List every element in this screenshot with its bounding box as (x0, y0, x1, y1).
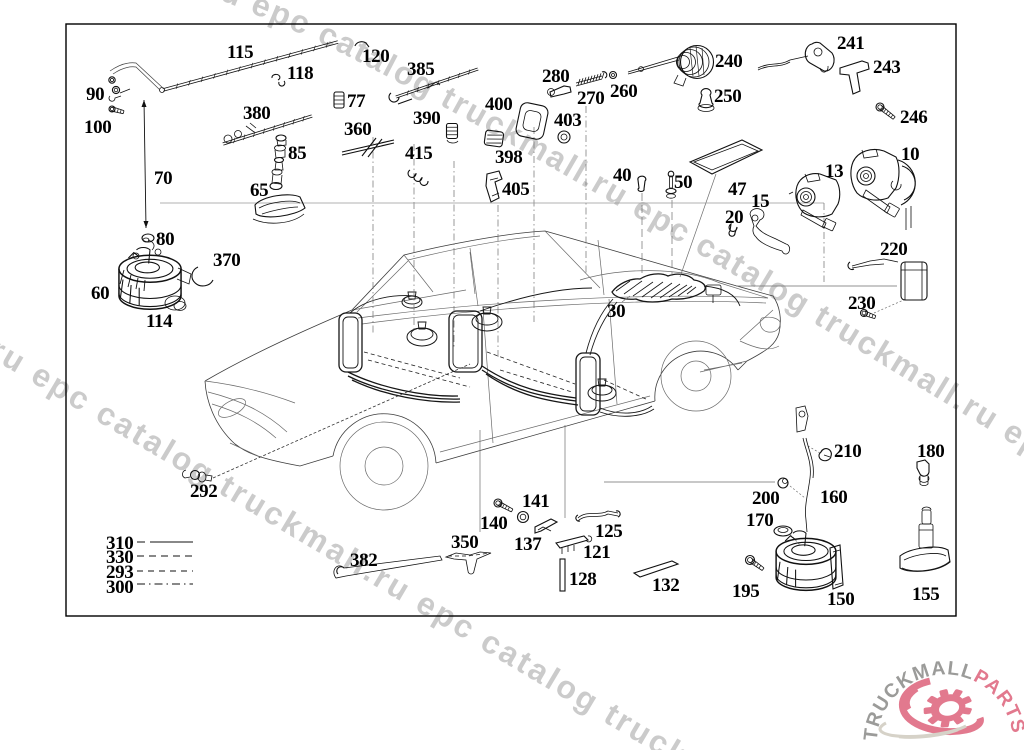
svg-text:90: 90 (86, 84, 104, 105)
svg-text:403: 403 (554, 110, 581, 131)
svg-text:50: 50 (674, 172, 692, 193)
svg-text:260: 260 (610, 81, 637, 102)
svg-text:121: 121 (583, 542, 610, 563)
svg-text:77: 77 (347, 91, 366, 112)
svg-text:120: 120 (362, 46, 389, 67)
svg-text:100: 100 (84, 117, 111, 138)
svg-text:210: 210 (834, 441, 861, 462)
svg-text:115: 115 (227, 42, 253, 63)
svg-text:170: 170 (746, 510, 773, 531)
svg-text:385: 385 (407, 59, 434, 80)
svg-text:370: 370 (213, 250, 240, 271)
svg-text:230: 230 (848, 293, 875, 314)
svg-text:350: 350 (451, 532, 478, 553)
svg-text:200: 200 (752, 488, 779, 509)
svg-text:292: 292 (190, 481, 217, 502)
svg-text:155: 155 (912, 584, 939, 605)
svg-text:118: 118 (287, 63, 313, 84)
svg-text:40: 40 (613, 165, 631, 186)
svg-text:243: 243 (873, 57, 900, 78)
svg-text:360: 360 (344, 119, 371, 140)
svg-text:30: 30 (607, 301, 625, 322)
svg-text:180: 180 (917, 441, 944, 462)
svg-text:15: 15 (751, 191, 769, 212)
svg-text:128: 128 (569, 569, 596, 590)
svg-text:141: 141 (522, 491, 549, 512)
svg-text:85: 85 (288, 143, 306, 164)
svg-text:280: 280 (542, 66, 569, 87)
svg-text:415: 415 (405, 143, 432, 164)
svg-text:47: 47 (728, 179, 747, 200)
svg-text:220: 220 (880, 239, 907, 260)
svg-text:60: 60 (91, 283, 109, 304)
svg-text:137: 137 (514, 534, 542, 555)
svg-text:270: 270 (577, 88, 604, 109)
svg-text:160: 160 (820, 487, 847, 508)
svg-text:250: 250 (714, 86, 741, 107)
svg-text:390: 390 (413, 108, 440, 129)
svg-text:125: 125 (595, 521, 622, 542)
svg-text:195: 195 (732, 581, 759, 602)
svg-text:13: 13 (825, 161, 843, 182)
svg-text:70: 70 (154, 168, 172, 189)
svg-text:240: 240 (715, 51, 742, 72)
svg-text:114: 114 (146, 311, 173, 332)
svg-text:10: 10 (901, 144, 919, 165)
svg-text:132: 132 (652, 575, 679, 596)
svg-text:140: 140 (480, 513, 507, 534)
svg-text:300: 300 (106, 577, 133, 598)
svg-text:65: 65 (250, 180, 268, 201)
svg-text:150: 150 (827, 589, 854, 610)
svg-text:400: 400 (485, 94, 512, 115)
svg-text:246: 246 (900, 107, 927, 128)
svg-text:405: 405 (502, 179, 529, 200)
svg-text:398: 398 (495, 147, 522, 168)
svg-text:382: 382 (350, 550, 377, 571)
svg-text:20: 20 (725, 207, 743, 228)
svg-text:80: 80 (156, 229, 174, 250)
svg-text:380: 380 (243, 103, 270, 124)
svg-text:241: 241 (837, 33, 864, 54)
